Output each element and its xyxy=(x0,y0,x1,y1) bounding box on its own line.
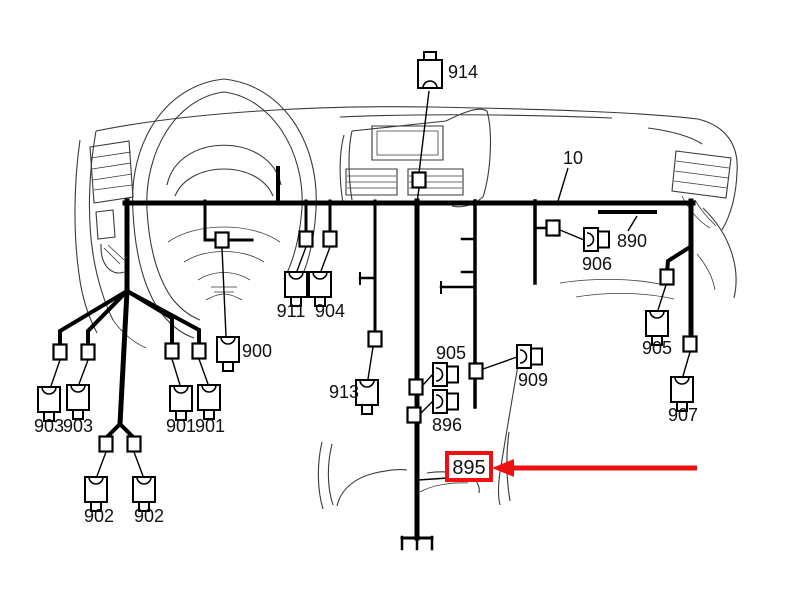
connector-label-901: 901 xyxy=(166,416,196,436)
leader-line xyxy=(628,216,637,231)
inline-connector-clip xyxy=(547,221,560,236)
connector-label-906: 906 xyxy=(582,254,612,274)
inline-connector-clip xyxy=(470,364,483,379)
inline-connector-clip xyxy=(369,332,382,347)
connector-body xyxy=(356,380,378,405)
leader-line xyxy=(418,478,448,480)
highlighted-part-label: 895 xyxy=(452,457,485,479)
connector-label-905: 905 xyxy=(436,343,466,363)
harness-wire xyxy=(127,291,199,345)
connector-plug-side xyxy=(584,228,609,251)
connector-plug xyxy=(418,52,442,88)
connector-tab xyxy=(447,394,458,410)
connector-body xyxy=(85,477,107,502)
leader-line xyxy=(79,360,88,384)
connector-label-911: 911 xyxy=(277,301,306,321)
inline-connector-clip xyxy=(661,270,674,285)
inline-connector-clip xyxy=(82,345,95,360)
connector-label-890: 890 xyxy=(617,231,647,251)
inline-connector-clip xyxy=(166,344,179,359)
leader-line xyxy=(421,401,433,413)
connector-body xyxy=(418,60,442,88)
connector-label-914: 914 xyxy=(448,62,478,82)
inline-connector-clip xyxy=(54,345,67,360)
connector-tab xyxy=(362,405,372,414)
connector-label-901: 901 xyxy=(195,416,225,436)
leader-line xyxy=(199,359,208,384)
leader-line xyxy=(134,452,143,476)
connector-label-902: 902 xyxy=(84,506,114,526)
connector-label-902: 902 xyxy=(134,506,164,526)
leader-lines xyxy=(51,91,690,480)
leader-line xyxy=(172,359,180,385)
connector-plug xyxy=(217,337,239,371)
connector-label-907: 907 xyxy=(668,405,698,425)
connector-plug-side xyxy=(433,390,458,413)
harness-wire xyxy=(120,291,127,424)
connector-body xyxy=(38,387,60,412)
inline-connector-clip xyxy=(128,437,141,452)
connector-label-913: 913 xyxy=(329,382,359,402)
leader-line xyxy=(222,248,226,336)
inline-connector-clip xyxy=(100,437,113,452)
inline-connector-clip xyxy=(413,173,426,188)
inline-connector-clip xyxy=(324,232,337,247)
connector-label-896: 896 xyxy=(432,415,462,435)
leader-line xyxy=(419,91,429,173)
connector-label-904: 904 xyxy=(315,301,345,321)
connector-plug-side xyxy=(433,363,458,386)
leader-line xyxy=(97,452,106,476)
leader-line xyxy=(483,357,517,369)
connector-tab xyxy=(223,362,233,371)
leader-line xyxy=(683,352,690,376)
inline-connector-clip xyxy=(216,233,229,248)
connector-plug xyxy=(67,385,89,419)
inline-connector-clip xyxy=(410,380,423,395)
leader-line xyxy=(368,347,373,379)
inline-connector-clip xyxy=(408,408,421,423)
harness-wire xyxy=(88,291,127,346)
connector-body xyxy=(198,385,220,410)
connector-tab xyxy=(531,349,542,365)
connector-body xyxy=(433,363,447,386)
connector-body xyxy=(217,337,239,362)
connector-body xyxy=(671,377,693,402)
leader-line xyxy=(560,230,584,240)
connector-label-903: 903 xyxy=(63,416,93,436)
connector-tab xyxy=(424,52,436,60)
connector-label-903: 903 xyxy=(34,416,64,436)
connector-label-900: 900 xyxy=(242,341,272,361)
connector-body xyxy=(584,228,598,251)
callout-895: 895 xyxy=(447,453,697,480)
connector-plug-side xyxy=(517,345,542,368)
wiring-harness-diagram: 9141089090691190490090590991389690390390… xyxy=(0,0,790,593)
connector-plug xyxy=(356,380,378,414)
inline-connector-clip xyxy=(193,344,206,359)
harness-layer: 9141089090691190490090590991389690390390… xyxy=(0,0,790,593)
connector-body xyxy=(433,390,447,413)
leader-line xyxy=(658,285,666,310)
harness-wire xyxy=(205,201,216,240)
connector-body xyxy=(133,477,155,502)
leader-line xyxy=(558,168,568,201)
connector-body xyxy=(67,385,89,410)
leader-line xyxy=(423,374,433,385)
inline-connector-clip xyxy=(684,337,697,352)
connector-body xyxy=(170,386,192,411)
connector-body xyxy=(309,272,331,297)
connector-body xyxy=(285,272,307,297)
leader-line xyxy=(297,247,306,271)
connector-label-909: 909 xyxy=(518,370,548,390)
connector-label-10: 10 xyxy=(563,148,583,168)
connector-tab xyxy=(447,367,458,383)
inline-connector-clip xyxy=(300,232,313,247)
harness-wire xyxy=(127,291,172,345)
connector-label-905: 905 xyxy=(642,338,672,358)
leader-line xyxy=(321,247,330,271)
connector-tab xyxy=(598,232,609,248)
connector-body xyxy=(517,345,531,368)
connector-plug xyxy=(170,386,192,420)
connector-plug xyxy=(198,385,220,419)
harness-wire xyxy=(667,247,690,272)
connector-body xyxy=(646,311,668,336)
leader-line xyxy=(51,360,60,386)
highlight-arrow-head xyxy=(492,459,514,477)
